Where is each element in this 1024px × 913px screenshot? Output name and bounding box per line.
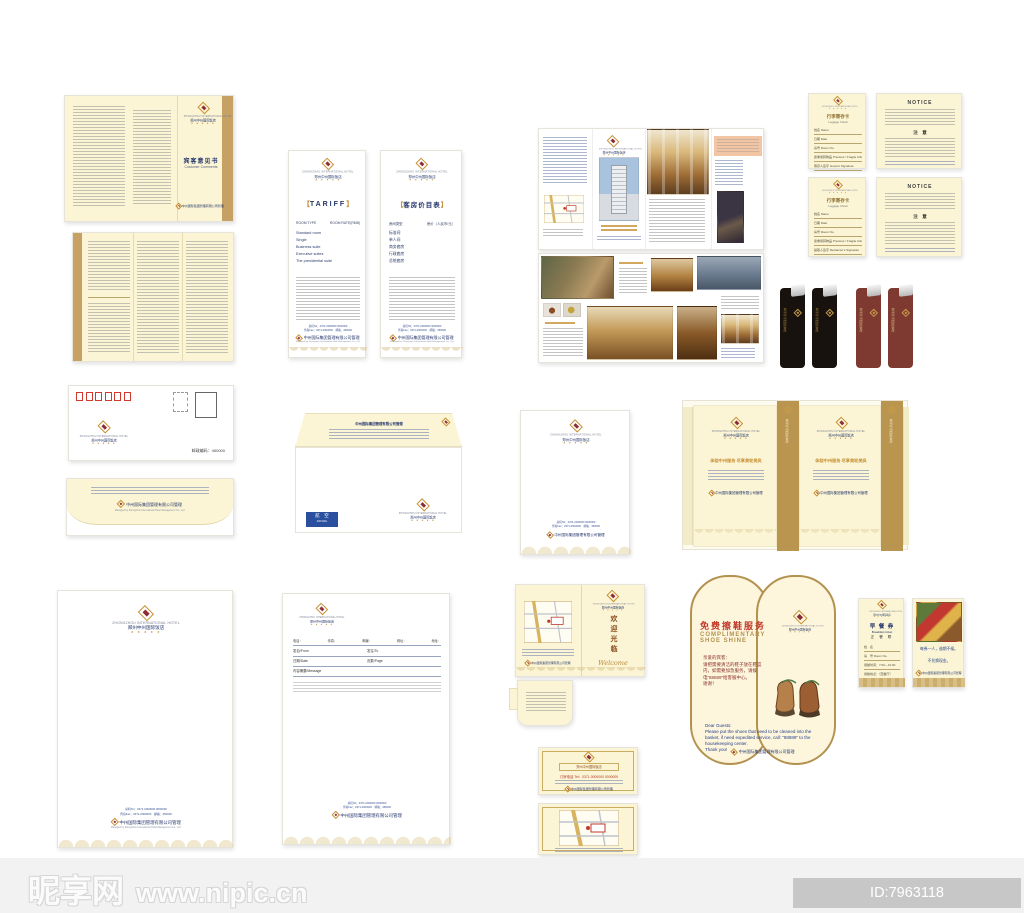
gusset-text: 郑州中州国际饭店 [785, 419, 789, 539]
hotel-logo-icon [442, 419, 450, 425]
text-lines-placeholder [88, 241, 130, 291]
brand-block: ZHONGZHOU INTERNATIONAL HOTEL 郑州中州国际饭店 ★… [782, 625, 818, 634]
hotel-logo-icon [731, 749, 737, 754]
hotel-logo-icon [118, 501, 125, 507]
management-line-en: Managed by Zhongzhou International Hotel… [76, 826, 216, 829]
photo-dish [543, 303, 561, 317]
form-fields: 姓名 Name 日期 Date 房号 Room No. 贵重易碎物品 Preci… [814, 126, 862, 171]
text-lines-placeholder [715, 160, 743, 186]
envelope-open: 中州国际集团管理有限公司管理 航 空 AIR MAIL ZHONGZHOU IN… [295, 413, 462, 533]
flap-title: 中州国际集团管理有限公司管理 [319, 421, 439, 426]
postcode-box [86, 392, 93, 401]
brochure-outer-spread: ZHONGZHOU INTERNATIONAL HOTEL 郑州中州国际饭店 ★… [538, 128, 764, 250]
bag-slogan: 体验中州服务 尽享美轮美奂 [696, 458, 776, 464]
envelope-front: ZHONGZHOU INTERNATIONAL HOTEL 郑州中州国际饭店 ★… [68, 385, 234, 461]
hotel-logo-icon [315, 604, 328, 613]
contact-lines: 总机Tel：0371-0000000 0000000 传真Fax：0371-00… [86, 807, 206, 816]
building-graphic [611, 165, 626, 213]
text-lines-placeholder [186, 241, 228, 353]
shoe-title-cn: 免费擦鞋服务 [700, 619, 776, 632]
hotel-logo-icon [176, 204, 181, 208]
photo-dining-hall [677, 306, 717, 360]
photo-lounge-chairs [697, 256, 761, 290]
envelope-flap: 中州国际集团管理有限公司管理 [295, 413, 462, 447]
location-map [559, 810, 619, 846]
contact-placeholder [522, 649, 574, 657]
photo-guestroom [541, 256, 614, 299]
fold-line [645, 129, 646, 249]
letterhead-a4: ZHONGZHOU INTERNATIONAL HOTEL 郑州中州国际饭店 ★… [57, 590, 233, 848]
contact-placeholder [708, 470, 764, 482]
lighter-cap [823, 284, 837, 297]
hotel-logo-icon [415, 159, 428, 168]
fax-row-from-to: 发自/From发往/To [293, 648, 441, 657]
lighter-cap [791, 284, 805, 297]
brand-block: ZHONGZHOU INTERNATIONAL HOTEL 郑州中州国际饭店 ★… [593, 603, 634, 612]
hotel-logo-icon [784, 407, 792, 413]
hotel-logo-icon [547, 532, 553, 537]
fine-print [293, 682, 441, 694]
bag-gusset-strip: 郑州中州国际饭店 [881, 401, 903, 551]
bag-panel: ZHONGZHOU INTERNATIONAL HOTEL 郑州中州国际饭店 ★… [799, 405, 881, 547]
form-line [88, 297, 130, 298]
fax-header-labels: 电话：传真：邮编：网址：地址： [293, 638, 441, 646]
gold-band [913, 678, 965, 687]
wave-pattern [58, 831, 234, 847]
fold-line [592, 129, 593, 249]
notice-title: NOTICE [877, 184, 963, 190]
bag-side-flap [683, 407, 693, 545]
form-fields: 姓名 Name 日期 Date 房号 Room No. 贵重易碎物品 Preci… [814, 210, 862, 255]
hotel-logo-icon [607, 136, 619, 145]
gold-band [859, 678, 905, 687]
hotel-logo-icon [730, 418, 743, 427]
lace-pattern [694, 529, 776, 538]
photo-corridor [721, 314, 759, 344]
footer-placeholder [885, 161, 955, 165]
management-line: 中州国际集团管理有限公司管理 [915, 671, 963, 675]
tariff-card-cn: ZHONGZHOU INTERNATIONAL HOTEL 郑州中州国际饭店 ★… [380, 150, 462, 358]
shoe-shine-card: 免费擦鞋服务 COMPLIMENTARY SHOE SHINE ZHONGZHO… [690, 575, 836, 765]
lace-pattern [516, 667, 646, 676]
brand-block: ZHONGZHOU INTERNATIONAL HOTEL 郑州中州国际饭店 ★… [599, 148, 629, 157]
brand-block: ZHONGZHOU INTERNATIONAL HOTEL★ ★ ★ ★ ★ [822, 190, 854, 195]
section-title-placeholder [619, 262, 643, 265]
postcode-box [95, 392, 102, 401]
caption-placeholder [601, 225, 637, 232]
wave-pattern [521, 544, 631, 554]
management-line: 中州国际集团管理有限公司管理 [544, 787, 634, 791]
management-line-en: Managed by Zhongzhou International Hotel… [387, 341, 457, 343]
card-title: 【客房价目表】 [381, 199, 463, 209]
photo-restaurant [651, 258, 693, 292]
card-subtitle: Luggage Check [809, 120, 867, 124]
lighter-cap [867, 284, 881, 297]
fold-line [581, 585, 582, 676]
hotel-logo-icon [332, 812, 339, 818]
notice-title: NOTICE [877, 100, 963, 106]
luggage-check-card: ZHONGZHOU INTERNATIONAL HOTEL★ ★ ★ ★ ★ 行… [808, 93, 866, 169]
hotel-logo-icon [835, 418, 848, 427]
notice-text-en-placeholder [885, 193, 955, 211]
brand-block: ZHONGZHOU INTERNATIONAL HOTEL 郑州中州国际饭店 ★… [546, 434, 606, 445]
stamp-area [195, 392, 217, 418]
location-map [524, 601, 572, 643]
lighter-text: 郑州中州国际饭店 [859, 308, 863, 360]
fine-print [389, 277, 455, 321]
management-line: 中州国际集团管理有限公司管理 [171, 204, 229, 208]
lace-pattern [800, 529, 880, 538]
brand-block: ZHONGZHOU INTERNATIONAL HOTEL 郑州中州国际饭店 ★… [78, 435, 131, 445]
breakfast-ticket-form: ZHONGZHOU INTERNATIONAL HOTEL郑州中州国际饭店★ ★… [858, 598, 904, 688]
hotel-logo-icon [833, 97, 843, 104]
hotel-logo-icon [826, 310, 833, 316]
lace-pattern [289, 347, 367, 356]
management-line: 中州国际集团管理有限公司管理 [696, 490, 776, 495]
brand-block: ZHONGZHOU INTERNATIONAL HOTEL 郑州中州国际饭店 ★… [184, 115, 222, 125]
tariff-card-en: ZHONGZHOU INTERNATIONAL HOTEL 郑州中州国际饭店 ★… [288, 150, 366, 358]
hotel-logo-icon [888, 407, 896, 413]
bag-gusset-strip: 郑州中州国际饭店 [777, 401, 799, 551]
notice-subtitle: 注 意 [877, 130, 963, 136]
lighter-maroon: 郑州中州国际饭店 [888, 288, 913, 368]
hotel-logo-icon [877, 601, 887, 608]
fine-print [296, 277, 360, 321]
envelope-flap: 中州国际集团管理有限公司管理 Managed by Zhongzhou Inte… [67, 479, 233, 525]
room-list: 标准间 单人间 商务套房 行政套房 总统套房 [389, 230, 455, 265]
hotel-logo-icon [97, 422, 111, 432]
envelope-body: 航 空 AIR MAIL ZHONGZHOU INTERNATIONAL HOT… [295, 447, 462, 533]
notice-text-cn-placeholder [885, 222, 955, 244]
notice-card: NOTICE 注 意 [876, 93, 962, 169]
fax-row-date-page: 日期/Date页数/Page [293, 658, 441, 667]
lighter-cap [899, 284, 913, 297]
text-lines-placeholder [717, 139, 759, 153]
hotel-logo-icon [296, 335, 302, 340]
postcode-box [105, 392, 112, 401]
hotel-logo-icon [565, 787, 570, 791]
text-lines-placeholder [619, 268, 647, 294]
management-line: 中州国际集团管理有限公司管理 [80, 501, 220, 508]
fold-line [182, 233, 183, 361]
image-id-badge: ID:7963118 NO:20121103125511034306 [793, 878, 1021, 908]
comments-book-cover: ZHONGZHOU INTERNATIONAL HOTEL 郑州中州国际饭店 ★… [64, 95, 234, 222]
postcode-box [76, 392, 83, 401]
site-watermark: 昵享网 www.nipic.cn [28, 866, 308, 912]
card-subtitle: Luggage Check [809, 204, 867, 208]
watermark-strip: 昵享网 www.nipic.cn ID:7963118 NO:201211031… [0, 858, 1024, 913]
lighter-text: 郑州中州国际饭店 [815, 308, 819, 360]
fax-sheet: ZHONGZHOU INTERNATIONAL HOTEL 郑州中州国际饭店 ★… [282, 593, 450, 845]
letterhead-small: ZHONGZHOU INTERNATIONAL HOTEL 郑州中州国际饭店 ★… [520, 410, 630, 555]
tariff-columns: ROOM TYPEROOM RATE(RMB) [296, 221, 360, 225]
bag-dieline: ZHONGZHOU INTERNATIONAL HOTEL 郑州中州国际饭店 ★… [682, 400, 908, 550]
hotel-logo-icon [111, 819, 118, 825]
intro-text-placeholder [543, 137, 587, 183]
brand-block: ZHONGZHOU INTERNATIONAL HOTEL 郑州中州国际饭店 ★… [708, 430, 764, 440]
reservation-card: 郑州中州国际饭店 订房电话 Tel：0371-0000000 0000000 中… [538, 747, 638, 795]
photo-lobby [647, 129, 709, 195]
lighter-maroon: 郑州中州国际饭店 [856, 288, 881, 368]
airmail-label: 航 空 AIR MAIL [306, 512, 338, 527]
text-lines-placeholder [88, 303, 130, 353]
lighter-text: 郑州中州国际饭店 [891, 308, 895, 360]
address-placeholder [555, 780, 623, 785]
reservation-tel: 订房电话 Tel：0371-0000000 0000000 [539, 774, 639, 779]
brand-block: ZHONGZHOU INTERNATIONAL HOTEL 郑州中州国际饭店 ★… [813, 430, 869, 440]
hotel-logo-icon [321, 159, 334, 168]
text-lines-placeholder [137, 241, 179, 353]
text-lines-placeholder [73, 106, 125, 208]
hotel-logo-icon [870, 310, 877, 316]
design-showcase-canvas: ZHONGZHOU INTERNATIONAL HOTEL 郑州中州国际饭店 ★… [0, 0, 1024, 913]
contact-lines: 总机Tel：0371-0000000 0000000 传真Fax：0371-00… [531, 521, 621, 529]
hotel-logo-icon [833, 181, 843, 188]
contact-placeholder [813, 470, 869, 482]
lighter-black: 郑州中州国际饭店 [780, 288, 805, 368]
hotel-logo-icon [416, 500, 430, 510]
lighter-text: 郑州中州国际饭店 [783, 308, 787, 360]
hotel-logo-icon [917, 671, 922, 675]
text-lines-placeholder [721, 348, 755, 358]
text-lines-placeholder [543, 328, 583, 356]
envelope-back: 中州国际集团管理有限公司管理 Managed by Zhongzhou Inte… [66, 478, 234, 536]
fax-row-message: 内容摘要/Message [293, 668, 441, 677]
ticket-note2: 不兑换现金。 [913, 659, 965, 664]
section-title-placeholder [545, 322, 575, 325]
hotel-logo-icon [390, 335, 396, 340]
notice-card: NOTICE 注 意 [876, 177, 962, 257]
hotel-name-box: 郑州中州国际饭店 [559, 763, 619, 771]
contact-placeholder [329, 429, 429, 441]
contact-lines: 总机Tel：0371-0000000 0000000 传真Fax：0371-00… [307, 802, 427, 810]
fold-line [711, 129, 712, 249]
bag-slogan: 体验中州服务 尽享美轮美奂 [801, 458, 881, 464]
comments-book-inner [72, 232, 234, 362]
welcome-folder-flap [517, 680, 573, 726]
hotel-logo-icon [583, 753, 594, 761]
address-placeholder [555, 848, 623, 852]
highlight-box [714, 136, 762, 156]
photo-dessert [563, 303, 581, 317]
ticket-title-en: Breakfast ticket [859, 630, 905, 634]
brand-block: ZHONGZHOU INTERNATIONAL HOTEL★ ★ ★ ★ ★ [822, 106, 854, 111]
flap-text-placeholder [526, 691, 566, 711]
photo-ballroom [587, 306, 673, 360]
photo-breakfast [916, 602, 962, 642]
management-line: 中州国际集团管理有限公司管理 [801, 490, 881, 495]
ticket-sub: 正 餐 联 [859, 635, 905, 640]
ticket-title-cn: 早 餐 券 [859, 622, 905, 630]
shoe-text-cn: 亲爱的宾客： 请把需要清洁的鞋子放在鞋篮内，如需要加急服务，请拨电“88889”… [703, 655, 767, 688]
management-line-en: Managed by Zhongzhou International Hotel… [293, 341, 363, 343]
book-spine [73, 233, 82, 361]
photo-doorman [717, 191, 744, 243]
notice-subtitle: 注 意 [877, 214, 963, 220]
welcome-folder: 中州国际集团管理有限公司管理 ZHONGZHOU INTERNATIONAL H… [515, 584, 645, 677]
contact-placeholder [91, 487, 209, 495]
wave-pattern [283, 826, 451, 844]
brand-block: ZHONGZHOU INTERNATIONAL HOTEL 郑州中州国际饭店 ★… [298, 171, 358, 182]
brand-block: ZHONGZHOU INTERNATIONAL HOTEL 郑州中州国际饭店 ★… [106, 621, 186, 635]
management-line: 中州国际集团管理有限公司管理 [76, 819, 216, 826]
contact-lines: 总机Tel：0371-0000000 0000000 传真Fax：0371-00… [293, 325, 363, 333]
footer-placeholder [885, 248, 955, 252]
boots-illustration [772, 675, 824, 719]
room-list: Standard room Single Business suite Exec… [296, 230, 360, 265]
management-line-en: Managed by Zhongzhou International Hotel… [80, 509, 220, 512]
gusset-text: 郑州中州国际饭店 [889, 419, 893, 539]
welcome-title-cn: 欢迎光临 [608, 615, 618, 657]
hotel-logo-icon [137, 607, 154, 619]
map-card [538, 803, 638, 855]
body-text-placeholder [649, 199, 705, 243]
postcode-box [114, 392, 121, 401]
hotel-logo-icon [792, 611, 807, 622]
ticket-note1: 每券一人，逾期不候。 [913, 647, 965, 652]
lace-pattern [381, 347, 463, 356]
brochure-inner-spread [538, 253, 764, 363]
hotel-logo-icon [902, 310, 909, 316]
bag-side-flap [903, 407, 909, 545]
welcome-title-en: Welcome [588, 659, 638, 667]
flap-tab [509, 688, 518, 710]
brand-block: ZHONGZHOU INTERNATIONAL HOTEL 郑州中州国际饭店 ★… [296, 617, 349, 627]
postcode-boxes [76, 392, 131, 401]
contact-lines: 总机Tel：0371-0000000 0000000 传真Fax：0371-00… [387, 325, 457, 333]
management-line: 中州国际集团管理有限公司管理 [710, 749, 816, 755]
brand-block: ZHONGZHOU INTERNATIONAL HOTEL 郑州中州国际饭店 ★… [392, 171, 452, 182]
hotel-logo-icon [794, 310, 801, 316]
notice-text-en-placeholder [885, 109, 955, 127]
lighter-black: 郑州中州国际饭店 [812, 288, 837, 368]
fold-line [133, 233, 134, 361]
management-line: 中州国际集团管理有限公司管理 [297, 812, 437, 819]
breakfast-ticket-photo: 每券一人，逾期不候。 不兑换现金。 中州国际集团管理有限公司管理 [912, 598, 964, 688]
stamp-area-dashed [173, 392, 188, 412]
hotel-logo-icon [569, 421, 583, 431]
hotel-logo-icon [814, 491, 819, 495]
management-placeholder [597, 236, 641, 241]
tariff-columns: 房间类型房价（人民币/元） [389, 221, 455, 226]
card-title: 【TARIFF】 [289, 199, 367, 209]
text-lines-placeholder [721, 296, 759, 310]
text-lines-placeholder [133, 110, 171, 206]
notice-text-cn-placeholder [885, 138, 955, 158]
hotel-logo-icon [197, 103, 210, 112]
hotel-logo-icon [709, 491, 714, 495]
brand-block: ZHONGZHOU INTERNATIONAL HOTEL郑州中州国际饭店★ ★… [869, 611, 894, 618]
photo-hotel-building [599, 157, 639, 221]
postcode-label: 邮政编码：450000 [192, 448, 225, 454]
postcode-box [124, 392, 131, 401]
management-line: 中州国际集团管理有限公司管理 [518, 661, 578, 665]
hotel-logo-icon [606, 591, 619, 600]
management-line: 中州国际集团管理有限公司管理 [531, 532, 621, 538]
ticket-fields: 姓 名 房 号 Room No. 用餐时间：7:00—10:00 用餐地点：（西… [864, 643, 900, 679]
bag-panel: ZHONGZHOU INTERNATIONAL HOTEL 郑州中州国际饭店 ★… [693, 405, 777, 547]
hotel-logo-icon [526, 661, 531, 665]
footer-text-placeholder [543, 229, 583, 237]
location-map [544, 195, 584, 223]
brand-block: ZHONGZHOU INTERNATIONAL HOTEL 郑州中州国际饭店 ★… [397, 512, 450, 522]
shoe-title-en: COMPLIMENTARY SHOE SHINE [700, 632, 780, 644]
luggage-check-card: ZHONGZHOU INTERNATIONAL HOTEL★ ★ ★ ★ ★ 行… [808, 177, 866, 257]
cover-title: 宾客意见书 Customer Comments [177, 156, 225, 169]
